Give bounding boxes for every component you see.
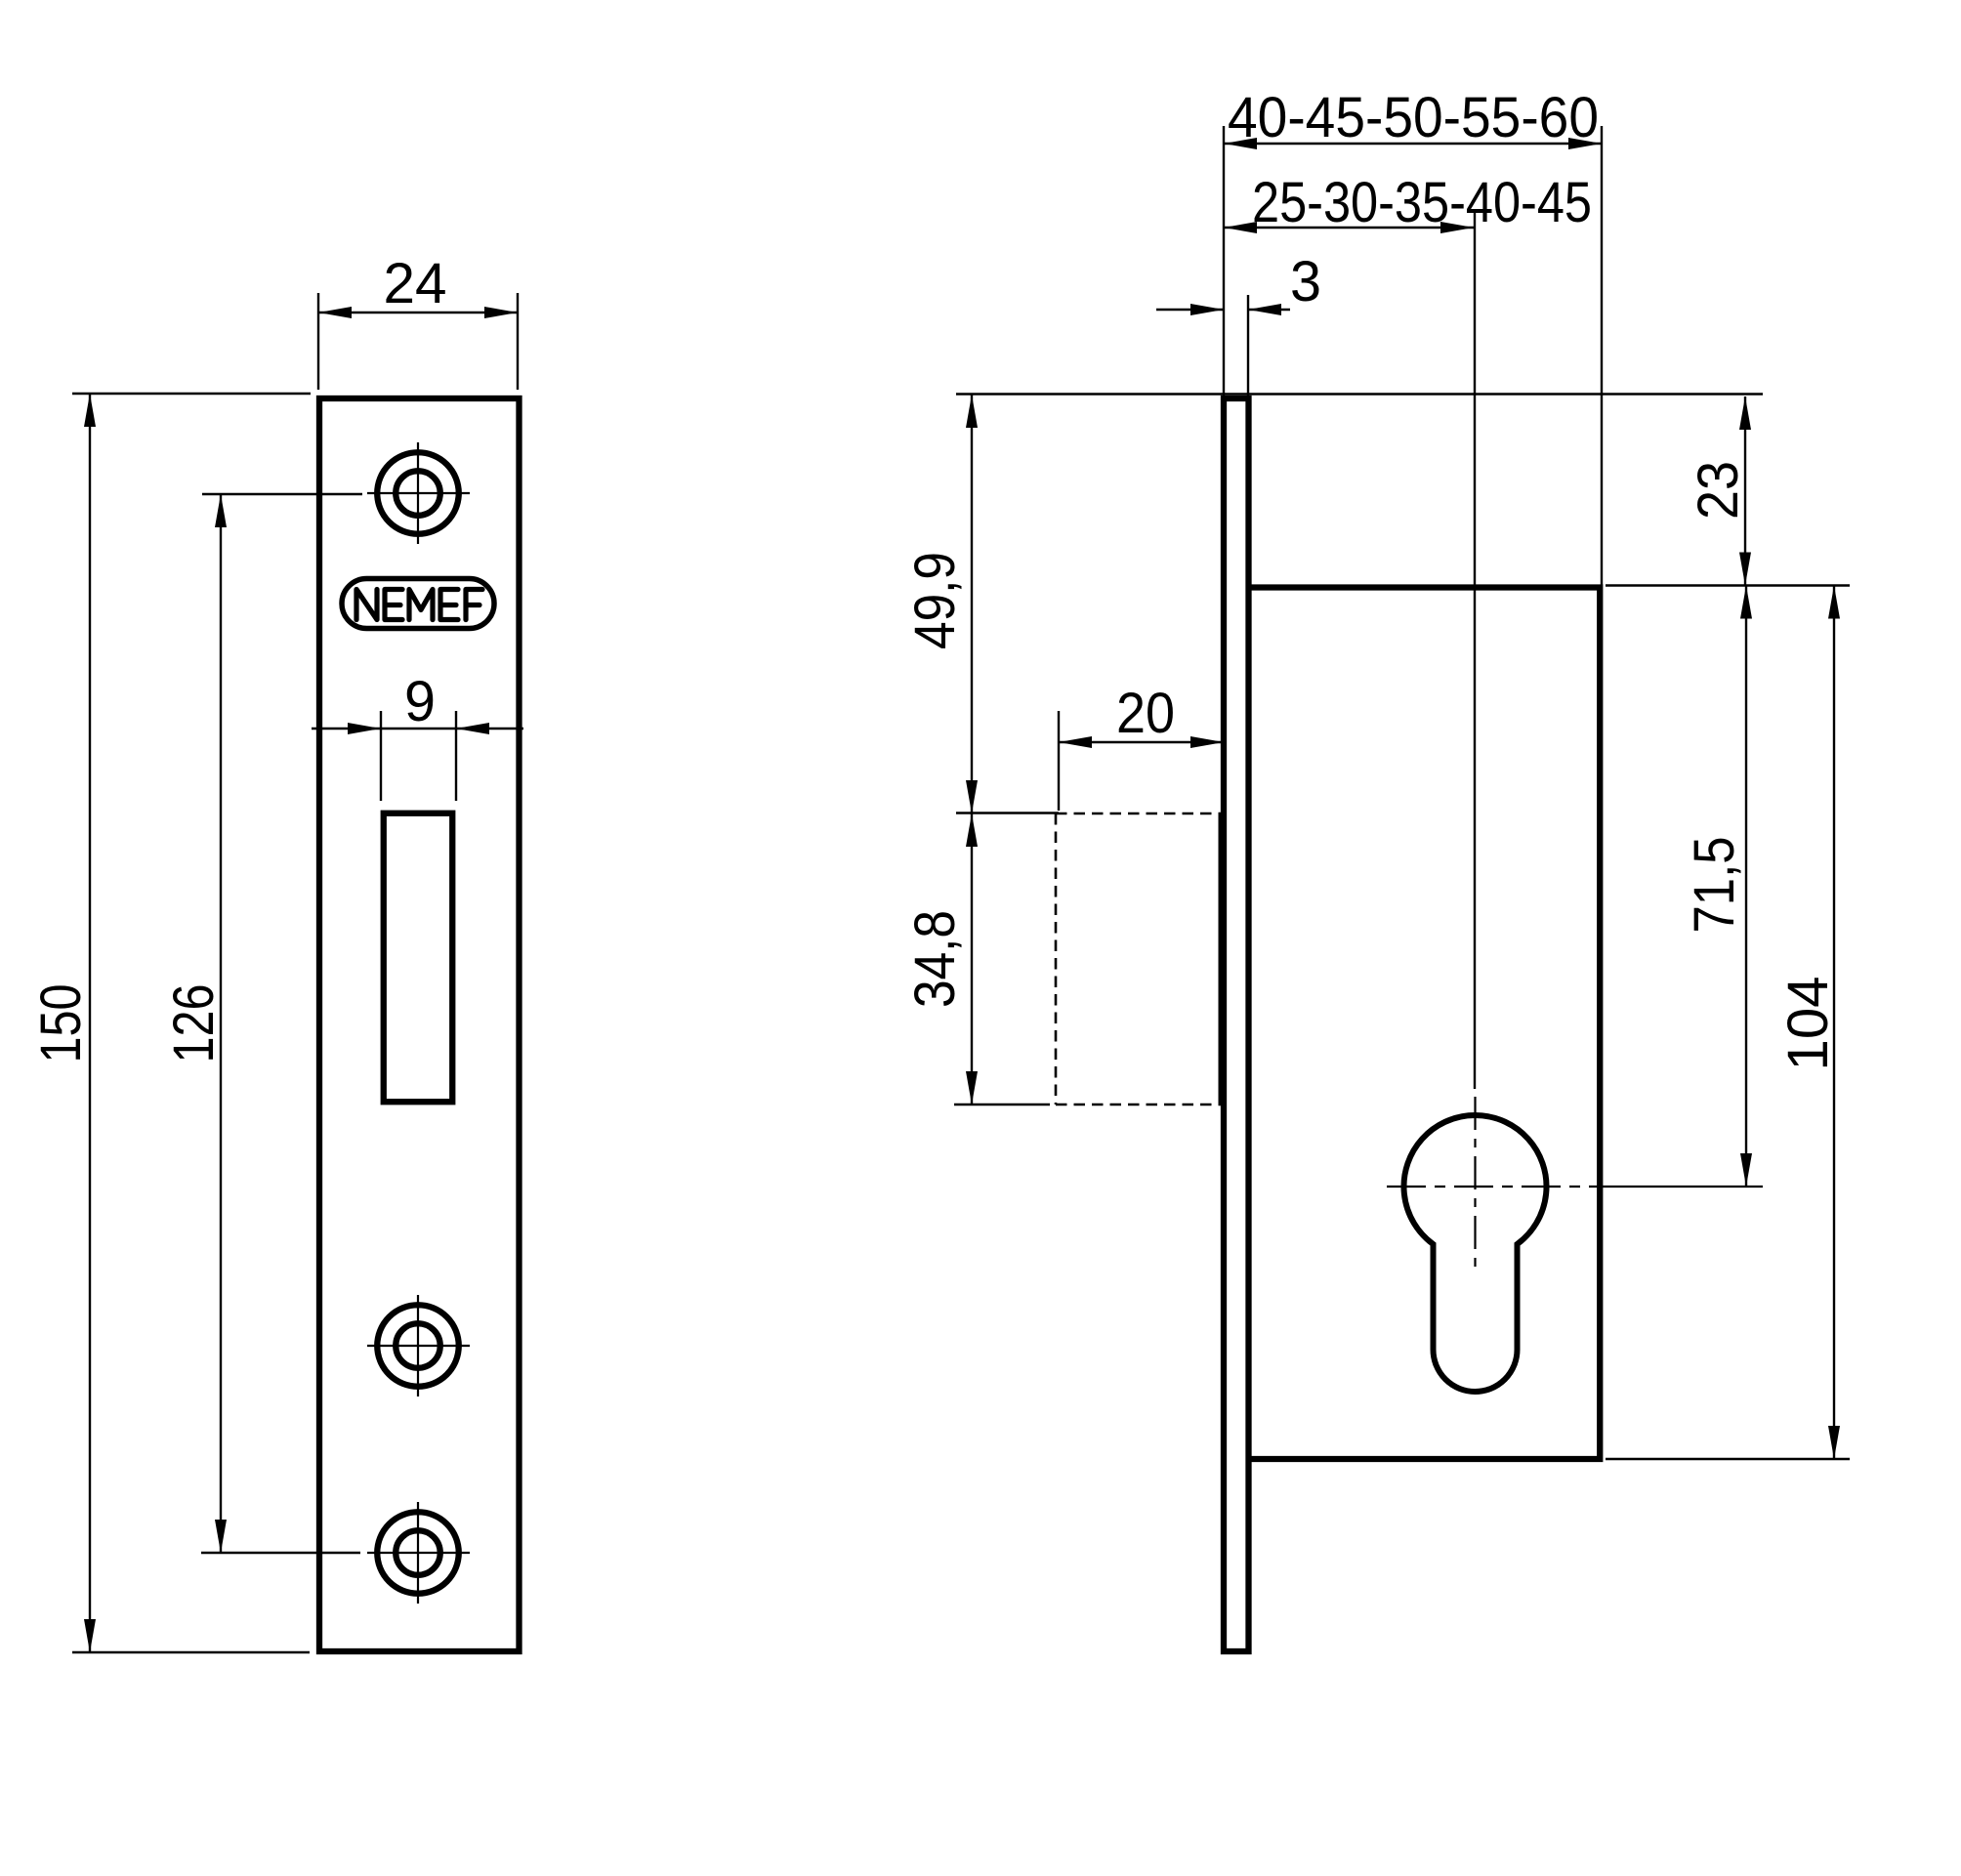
- svg-text:25-30-35-40-45: 25-30-35-40-45: [1252, 171, 1592, 234]
- svg-text:150: 150: [29, 984, 93, 1063]
- svg-text:71,5: 71,5: [1683, 837, 1746, 934]
- svg-text:24: 24: [384, 252, 447, 315]
- svg-text:126: 126: [162, 984, 226, 1063]
- svg-text:104: 104: [1776, 977, 1840, 1071]
- svg-text:34,8: 34,8: [903, 910, 967, 1008]
- svg-text:20: 20: [1116, 682, 1175, 745]
- svg-text:9: 9: [404, 670, 436, 733]
- svg-text:23: 23: [1687, 461, 1750, 520]
- svg-text:49,9: 49,9: [903, 552, 967, 649]
- svg-text:40-45-50-55-60: 40-45-50-55-60: [1228, 86, 1599, 149]
- svg-text:3: 3: [1290, 250, 1321, 313]
